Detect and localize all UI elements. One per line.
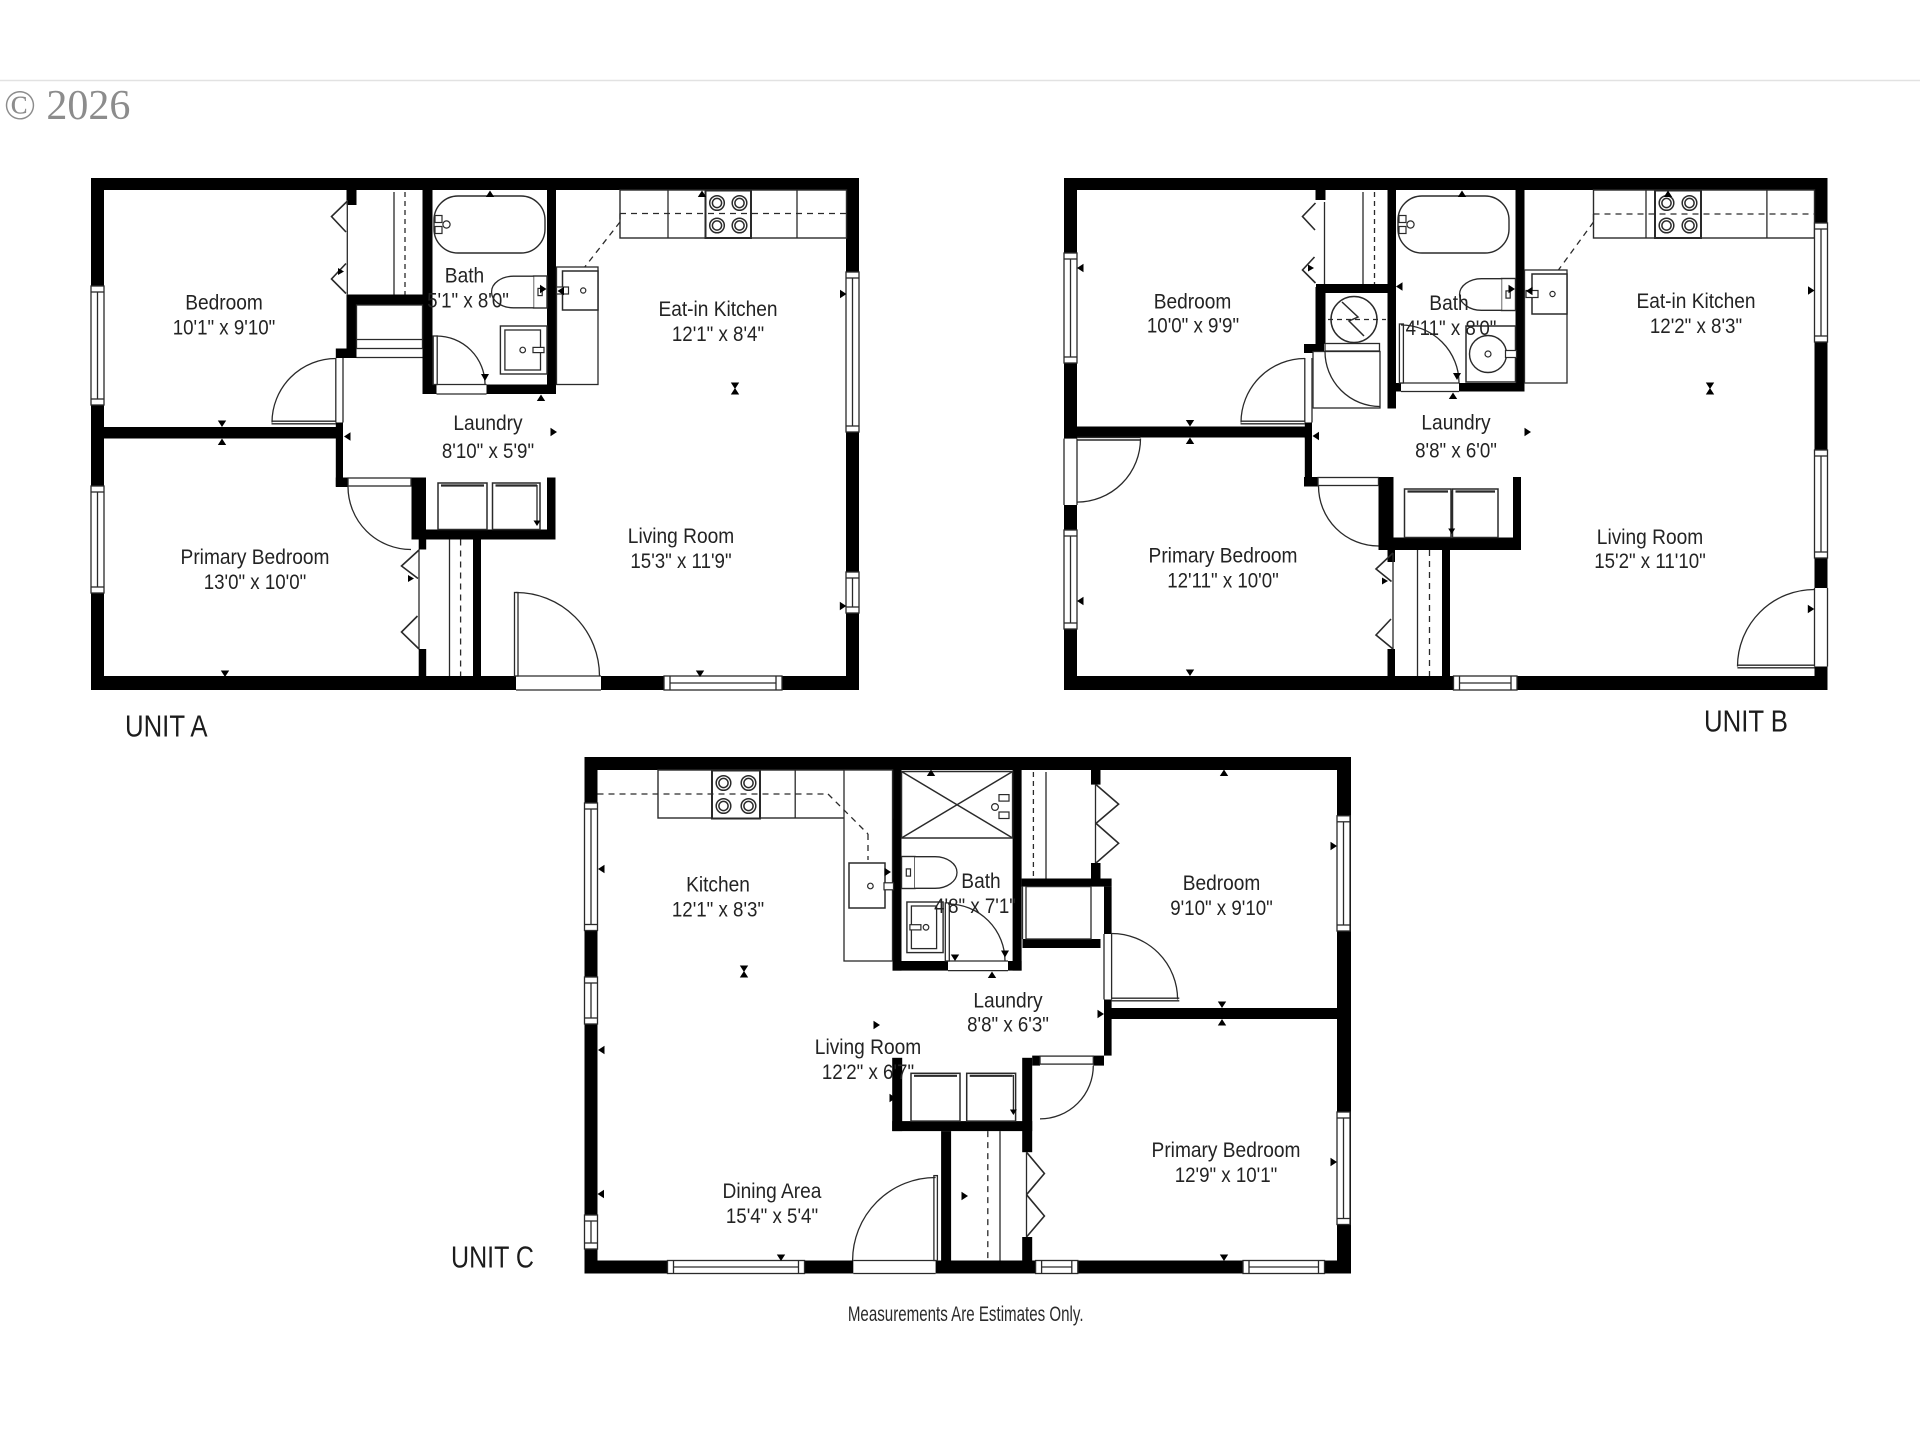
svg-text:Eat-in Kitchen: Eat-in Kitchen [658,297,777,321]
svg-text:12'2" x 8'3": 12'2" x 8'3" [1650,314,1742,338]
svg-text:12'1" x 8'3": 12'1" x 8'3" [672,898,764,922]
svg-text:Kitchen: Kitchen [686,873,750,897]
svg-text:Laundry: Laundry [1421,411,1490,435]
svg-text:13'0" x 10'0": 13'0" x 10'0" [204,570,307,594]
svg-text:12'9" x 10'1": 12'9" x 10'1" [1175,1163,1278,1187]
svg-text:12'11" x 10'0": 12'11" x 10'0" [1167,569,1279,593]
svg-text:15'4" x 5'4": 15'4" x 5'4" [726,1204,818,1228]
svg-text:Primary Bedroom: Primary Bedroom [181,545,330,569]
svg-text:9'10" x 9'10": 9'10" x 9'10" [1170,896,1273,920]
svg-text:Primary Bedroom: Primary Bedroom [1149,544,1298,568]
svg-text:12'2" x 6'7": 12'2" x 6'7" [822,1060,914,1084]
svg-text:UNIT A: UNIT A [125,708,208,743]
svg-text:Living Room: Living Room [1597,525,1703,549]
svg-text:Living Room: Living Room [815,1035,921,1059]
svg-text:Bath: Bath [445,264,484,288]
svg-text:15'2" x 11'10": 15'2" x 11'10" [1594,549,1706,573]
svg-text:12'1" x 8'4": 12'1" x 8'4" [672,322,764,346]
svg-text:UNIT B: UNIT B [1704,704,1788,739]
svg-text:Laundry: Laundry [453,411,522,435]
svg-text:4'8" x 7'1": 4'8" x 7'1" [934,894,1016,918]
svg-text:8'10" x 5'9": 8'10" x 5'9" [442,439,534,463]
svg-text:Bedroom: Bedroom [185,291,263,315]
svg-text:Bedroom: Bedroom [1183,871,1261,895]
svg-text:Dining Area: Dining Area [723,1179,822,1203]
svg-text:Eat-in Kitchen: Eat-in Kitchen [1636,289,1755,313]
svg-text:Bath: Bath [1429,291,1468,315]
svg-text:Bath: Bath [961,869,1000,893]
svg-text:Laundry: Laundry [973,989,1042,1013]
svg-text:10'1" x 9'10": 10'1" x 9'10" [173,315,276,339]
svg-text:UNIT C: UNIT C [451,1240,534,1275]
svg-text:Living Room: Living Room [628,524,734,548]
svg-text:Bedroom: Bedroom [1154,289,1232,313]
svg-text:10'0" x 9'9": 10'0" x 9'9" [1147,314,1239,338]
svg-text:4'11" x 8'0": 4'11" x 8'0" [1406,316,1497,340]
svg-text:Primary Bedroom: Primary Bedroom [1152,1138,1301,1162]
svg-text:© 2026: © 2026 [4,83,130,129]
svg-text:5'1" x 8'0": 5'1" x 8'0" [427,289,509,313]
svg-text:Measurements Are Estimates Onl: Measurements Are Estimates Only. [848,1302,1084,1326]
svg-text:15'3" x 11'9": 15'3" x 11'9" [630,549,731,573]
svg-text:8'8" x 6'0": 8'8" x 6'0" [1415,439,1497,463]
svg-text:8'8" x 6'3": 8'8" x 6'3" [967,1013,1049,1037]
